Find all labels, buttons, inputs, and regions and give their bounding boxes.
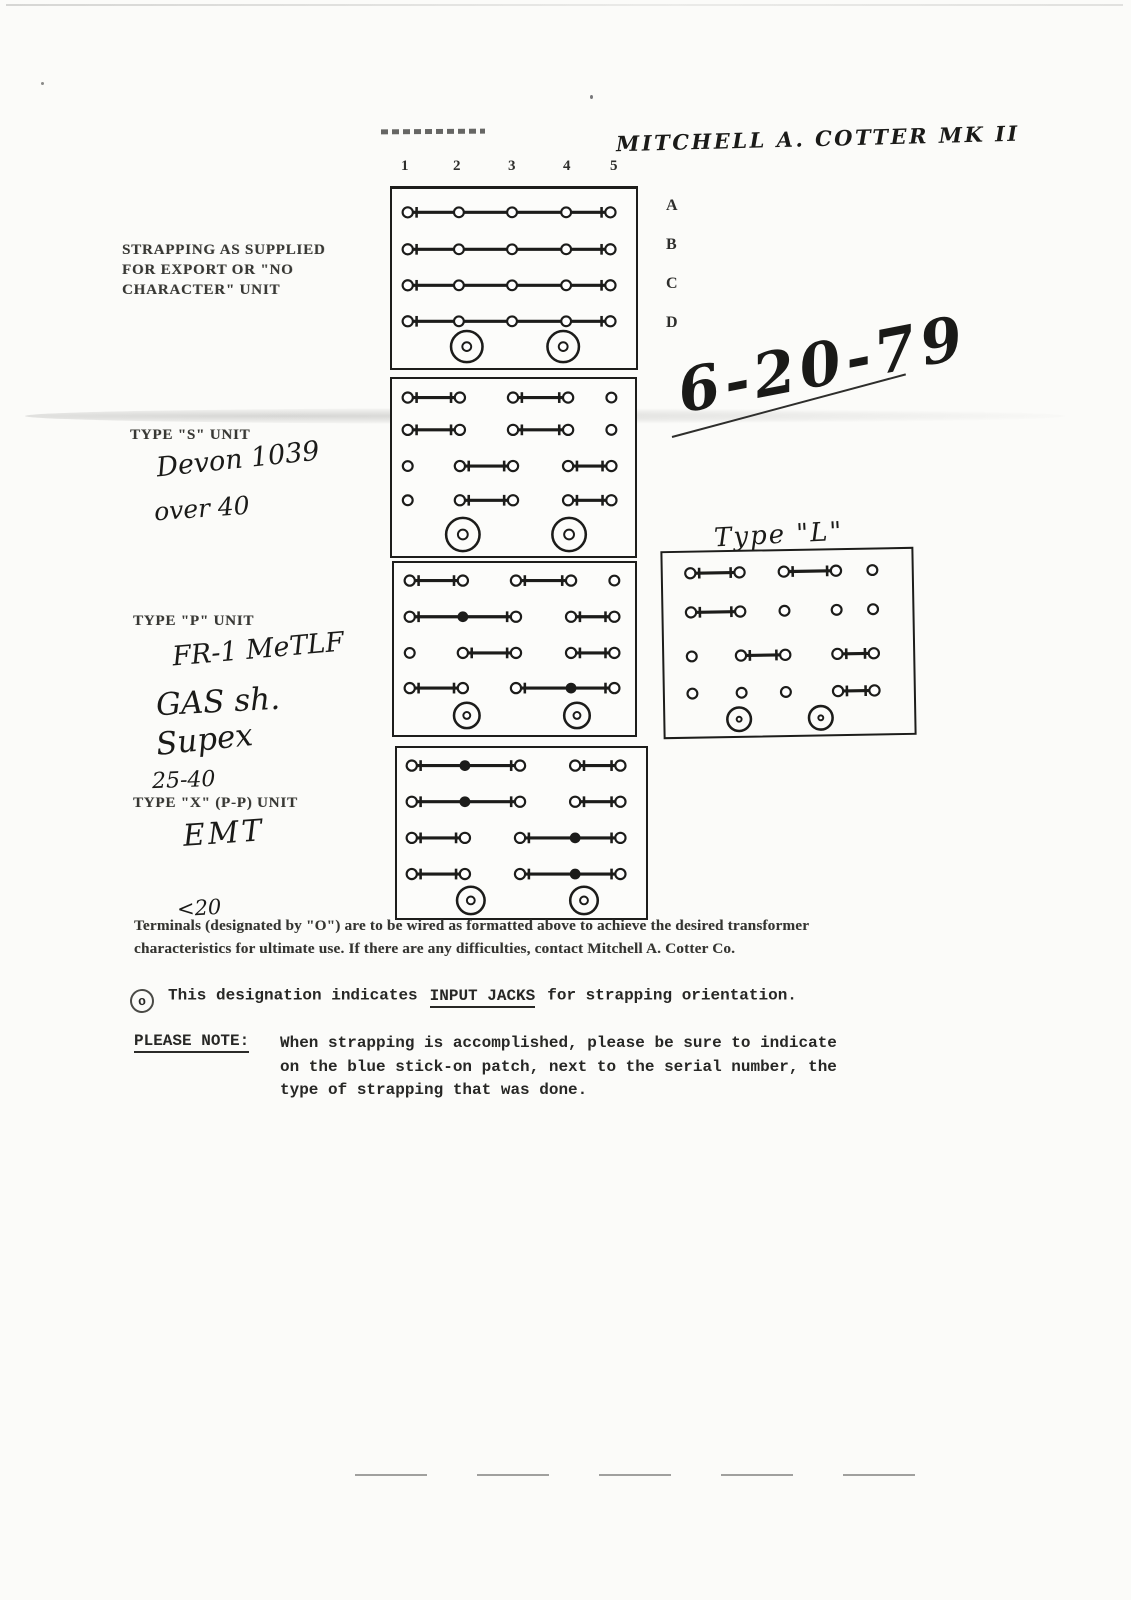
please-note-line2: on the blue stick-on patch, next to the … [280, 1056, 837, 1080]
diagram-box-type-s [390, 377, 637, 558]
label-export-strapping: STRAPPING AS SUPPLIED FOR EXPORT OR "NO … [122, 240, 372, 300]
scan-artifact-dot [41, 82, 44, 85]
handwritten-emt: EMT [182, 813, 266, 854]
terminals-note-line1: Terminals (designated by "O") are to be … [134, 914, 924, 937]
label-type-p-unit: TYPE "P" UNIT [133, 613, 254, 630]
strap-diagram-type-s [392, 379, 635, 556]
diagram-box-type-l [660, 547, 916, 739]
terminals-note-line2: characteristics for ultimate use. If the… [134, 937, 924, 960]
column-number-5: 5 [610, 158, 618, 175]
label-type-x-unit: TYPE "X" (P-P) UNIT [133, 795, 298, 812]
handwritten-gas-sh: GAS sh. [155, 681, 281, 723]
column-number-2: 2 [453, 158, 461, 175]
row-letter-d: D [666, 314, 679, 332]
jack-symbol-letter: o [137, 993, 146, 1009]
column-number-1: 1 [401, 158, 409, 175]
label-type-s-unit: TYPE "S" UNIT [130, 427, 250, 444]
handwritten-25-40: 25-40 [152, 767, 216, 794]
circled-o-icon: o [129, 988, 155, 1014]
terminals-note-paragraph: Terminals (designated by "O") are to be … [134, 914, 924, 960]
input-jacks-note: oThis designation indicatesINPUT JACKSfo… [130, 984, 797, 1008]
label-export-line3: CHARACTER" UNIT [122, 280, 372, 300]
handwritten-over-40: over 40 [153, 491, 250, 527]
handwritten-title: MITCHELL A. COTTER MK II [616, 121, 1020, 157]
please-note-body: When strapping is accomplished, please b… [280, 1032, 837, 1103]
please-note-label: PLEASE NOTE: [134, 1032, 249, 1053]
strap-diagram-type-l [662, 549, 914, 737]
handwritten-date: 6-20-79 [672, 303, 974, 428]
scan-artifact-bottom-line [355, 1474, 940, 1476]
please-note-line3: type of strapping that was done. [280, 1079, 837, 1103]
diagram-box-export [390, 186, 638, 370]
label-export-line1: STRAPPING AS SUPPLIED [122, 240, 372, 260]
column-number-4: 4 [563, 158, 571, 175]
label-export-line2: FOR EXPORT OR "NO [122, 260, 372, 280]
row-letter-c: C [666, 275, 679, 293]
scan-artifact-top-line [6, 4, 1123, 6]
column-number-3: 3 [508, 158, 516, 175]
jack-note-prefix: This designation indicates [168, 987, 418, 1005]
strap-diagram-type-x [397, 748, 646, 918]
scanned-strapping-instruction-sheet: MITCHELL A. COTTER MK II 6-20-79 1 2 3 4… [0, 0, 1131, 1600]
handwritten-supex: Supex [154, 717, 254, 763]
handwritten-fr1-metlf: FR-1 MeTLF [171, 627, 345, 673]
jack-note-suffix: for strapping orientation. [547, 987, 797, 1005]
strap-diagram-export [392, 189, 636, 368]
scan-artifact-smudge [381, 129, 485, 135]
please-note-line1: When strapping is accomplished, please b… [280, 1032, 837, 1056]
strap-diagram-type-p [394, 563, 635, 735]
row-letter-b: B [666, 236, 678, 254]
jack-note-underlined: INPUT JACKS [430, 987, 536, 1008]
scan-artifact-dot [590, 95, 593, 99]
row-letter-a: A [666, 197, 679, 215]
diagram-box-type-x [395, 746, 648, 920]
diagram-box-type-p [392, 561, 637, 737]
